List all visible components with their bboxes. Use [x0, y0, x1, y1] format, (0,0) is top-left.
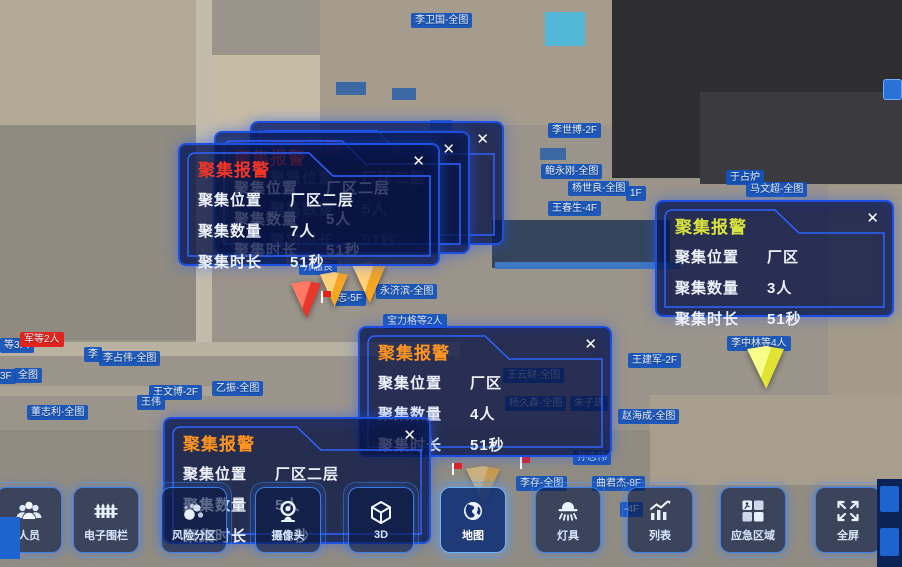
alarm-row-label: 聚集时长	[675, 308, 767, 329]
alarm-popup-row: 聚集位置厂区	[675, 246, 882, 267]
alarm-row-value: 3人	[767, 277, 792, 298]
gathering-alarm-popup: 聚集报警✕聚集位置厂区聚集数量3人聚集时长51秒	[655, 200, 894, 317]
alarm-row-label: 聚集位置	[183, 463, 275, 484]
fence-icon	[91, 497, 121, 525]
right-edge-chip[interactable]	[883, 79, 902, 100]
alarm-popup-row: 聚集时长51秒	[198, 251, 428, 272]
toolbar-button-fullscreen[interactable]: 全屏	[815, 487, 881, 553]
toolbar-button-label: 灯具	[557, 527, 579, 543]
alarm-popup-title: 聚集报警	[198, 156, 270, 181]
chart-icon	[645, 497, 675, 525]
bottom-left-chip[interactable]	[0, 517, 20, 559]
toolbar-button-chart[interactable]: 列表	[627, 487, 693, 553]
toolbar-button-globe[interactable]: 地图	[440, 487, 506, 553]
gathering-alarm-popup: 聚集报警✕聚集位置厂区二层聚集数量7人聚集时长51秒	[178, 143, 440, 266]
toolbar-button-cube-3d[interactable]: 3D	[348, 487, 414, 553]
alarm-popup-row: 聚集数量7人	[198, 220, 428, 241]
cube-3d-icon	[366, 499, 396, 527]
right-edge-block[interactable]	[880, 486, 899, 512]
alarm-row-value: 厂区二层	[290, 189, 354, 210]
emergency-icon	[738, 497, 768, 525]
close-icon[interactable]: ✕	[584, 335, 597, 353]
globe-icon	[458, 497, 488, 525]
toolbar-button-label: 应急区域	[731, 527, 775, 543]
fullscreen-icon	[833, 497, 863, 525]
alarm-row-value: 厂区	[767, 246, 799, 267]
alarm-row-value: 厂区	[470, 372, 502, 393]
toolbar-button-label: 地图	[462, 527, 484, 543]
toolbar-button-fence[interactable]: 电子围栏	[73, 487, 139, 553]
toolbar-button-label: 全屏	[837, 527, 859, 543]
alarm-row-value: 51秒	[470, 434, 505, 455]
close-icon[interactable]: ✕	[442, 140, 455, 158]
close-icon[interactable]: ✕	[403, 426, 416, 444]
alarm-row-label: 聚集位置	[675, 246, 767, 267]
toolbar-button-emergency[interactable]: 应急区域	[720, 487, 786, 553]
bubbles-icon	[179, 497, 209, 525]
alarm-row-label: 聚集位置	[378, 372, 470, 393]
monitoring-map-screen: 李卫国-全图李世博-2F鲍永刚-全图杨世良-全图1F王春生-4F于占炉马文超-全…	[0, 0, 902, 567]
toolbar-button-label: 风险分区	[172, 527, 216, 543]
right-edge-panel	[877, 479, 902, 567]
alarm-popup-title: 聚集报警	[183, 430, 255, 455]
toolbar-button-camera[interactable]: 摄像头	[255, 487, 321, 553]
alarm-row-label: 聚集数量	[198, 220, 290, 241]
alarm-popup-rows: 聚集位置厂区二层聚集数量7人聚集时长51秒	[198, 189, 428, 282]
camera-icon	[273, 497, 303, 525]
alarm-popup-title: 聚集报警	[675, 213, 747, 238]
alarm-row-label: 聚集时长	[198, 251, 290, 272]
alarm-popup-row: 聚集位置厂区	[378, 372, 600, 393]
alarm-popup-row: 聚集位置厂区二层	[198, 189, 428, 210]
alarm-popup-row: 聚集数量3人	[675, 277, 882, 298]
alarm-row-value: 51秒	[767, 308, 802, 329]
close-icon[interactable]: ✕	[412, 152, 425, 170]
toolbar-button-lamp[interactable]: 灯具	[535, 487, 601, 553]
alarm-row-value: 4人	[470, 403, 495, 424]
alarm-row-value: 厂区二层	[275, 463, 339, 484]
right-edge-block[interactable]	[880, 528, 899, 556]
toolbar-button-label: 3D	[374, 529, 388, 541]
alarm-popup-row: 聚集位置厂区二层	[183, 463, 419, 484]
alarm-popup-rows: 聚集位置厂区聚集数量3人聚集时长51秒	[675, 246, 882, 339]
alarm-popup-row: 聚集时长51秒	[675, 308, 882, 329]
alarm-popup-title: 聚集报警	[378, 339, 450, 364]
alarm-row-label: 聚集数量	[675, 277, 767, 298]
toolbar-button-label: 电子围栏	[84, 527, 128, 543]
alarm-row-value: 7人	[290, 220, 315, 241]
toolbar-button-bubbles[interactable]: 风险分区	[161, 487, 227, 553]
close-icon[interactable]: ✕	[476, 130, 489, 148]
alarm-row-value: 51秒	[290, 251, 325, 272]
alarm-row-label: 聚集位置	[198, 189, 290, 210]
toolbar-button-label: 摄像头	[272, 527, 305, 543]
lamp-icon	[553, 497, 583, 525]
close-icon[interactable]: ✕	[866, 209, 879, 227]
toolbar-button-label: 列表	[649, 527, 671, 543]
toolbar-button-label: 人员	[18, 527, 40, 543]
